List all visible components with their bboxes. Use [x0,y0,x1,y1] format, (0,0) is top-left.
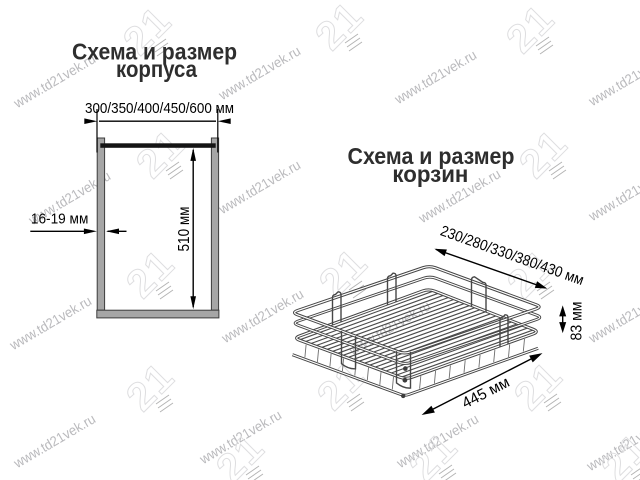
svg-text:83 мм: 83 мм [569,302,586,341]
svg-text:510 мм: 510 мм [176,207,193,252]
svg-text:корзин: корзин [392,161,468,187]
svg-text:16-19 мм: 16-19 мм [31,211,89,228]
svg-text:300/350/400/450/600 мм: 300/350/400/450/600 мм [85,100,234,117]
svg-text:корпуса: корпуса [116,56,197,82]
